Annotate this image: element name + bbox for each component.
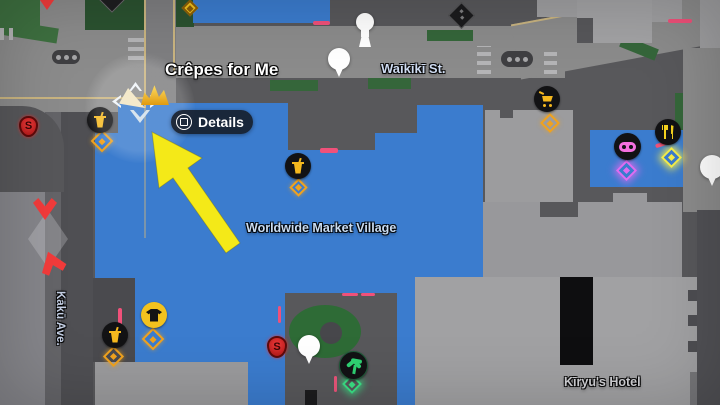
minimap: S S Crêpes for Me Waīkīkī St. Worldwide … (0, 0, 720, 405)
vignette-overlay (0, 0, 720, 405)
